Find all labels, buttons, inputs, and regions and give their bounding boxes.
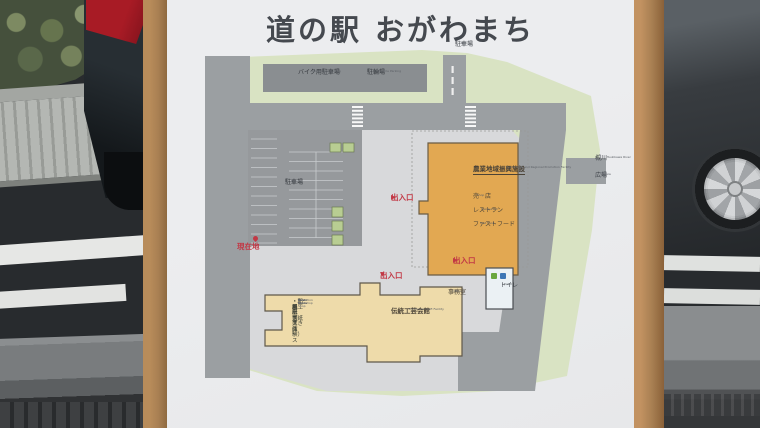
toilet-green-icon bbox=[491, 273, 497, 279]
wheel-hub bbox=[727, 181, 743, 197]
road-top-spur bbox=[443, 55, 466, 103]
road-marking bbox=[0, 234, 158, 266]
photo-of-map-sign: 道の駅 おがわまち bbox=[0, 0, 760, 428]
road-marking bbox=[664, 255, 760, 272]
sign-frame-right-post bbox=[634, 0, 664, 428]
site-map-drawing bbox=[167, 0, 634, 428]
toilet-blue-icon bbox=[500, 273, 506, 279]
two-wheel-parking-strip bbox=[263, 64, 427, 92]
sign-frame-left-post bbox=[143, 0, 167, 428]
lane-dashes bbox=[452, 66, 454, 95]
road-top bbox=[205, 103, 566, 130]
road-marking bbox=[664, 288, 760, 305]
road-bottom bbox=[458, 332, 535, 391]
label-current-location: 現在地 bbox=[237, 243, 260, 251]
road-marking bbox=[0, 284, 126, 309]
sign-panel: 道の駅 おがわまち bbox=[167, 0, 634, 428]
paving-blocks bbox=[664, 394, 760, 416]
paving-blocks bbox=[0, 402, 167, 428]
